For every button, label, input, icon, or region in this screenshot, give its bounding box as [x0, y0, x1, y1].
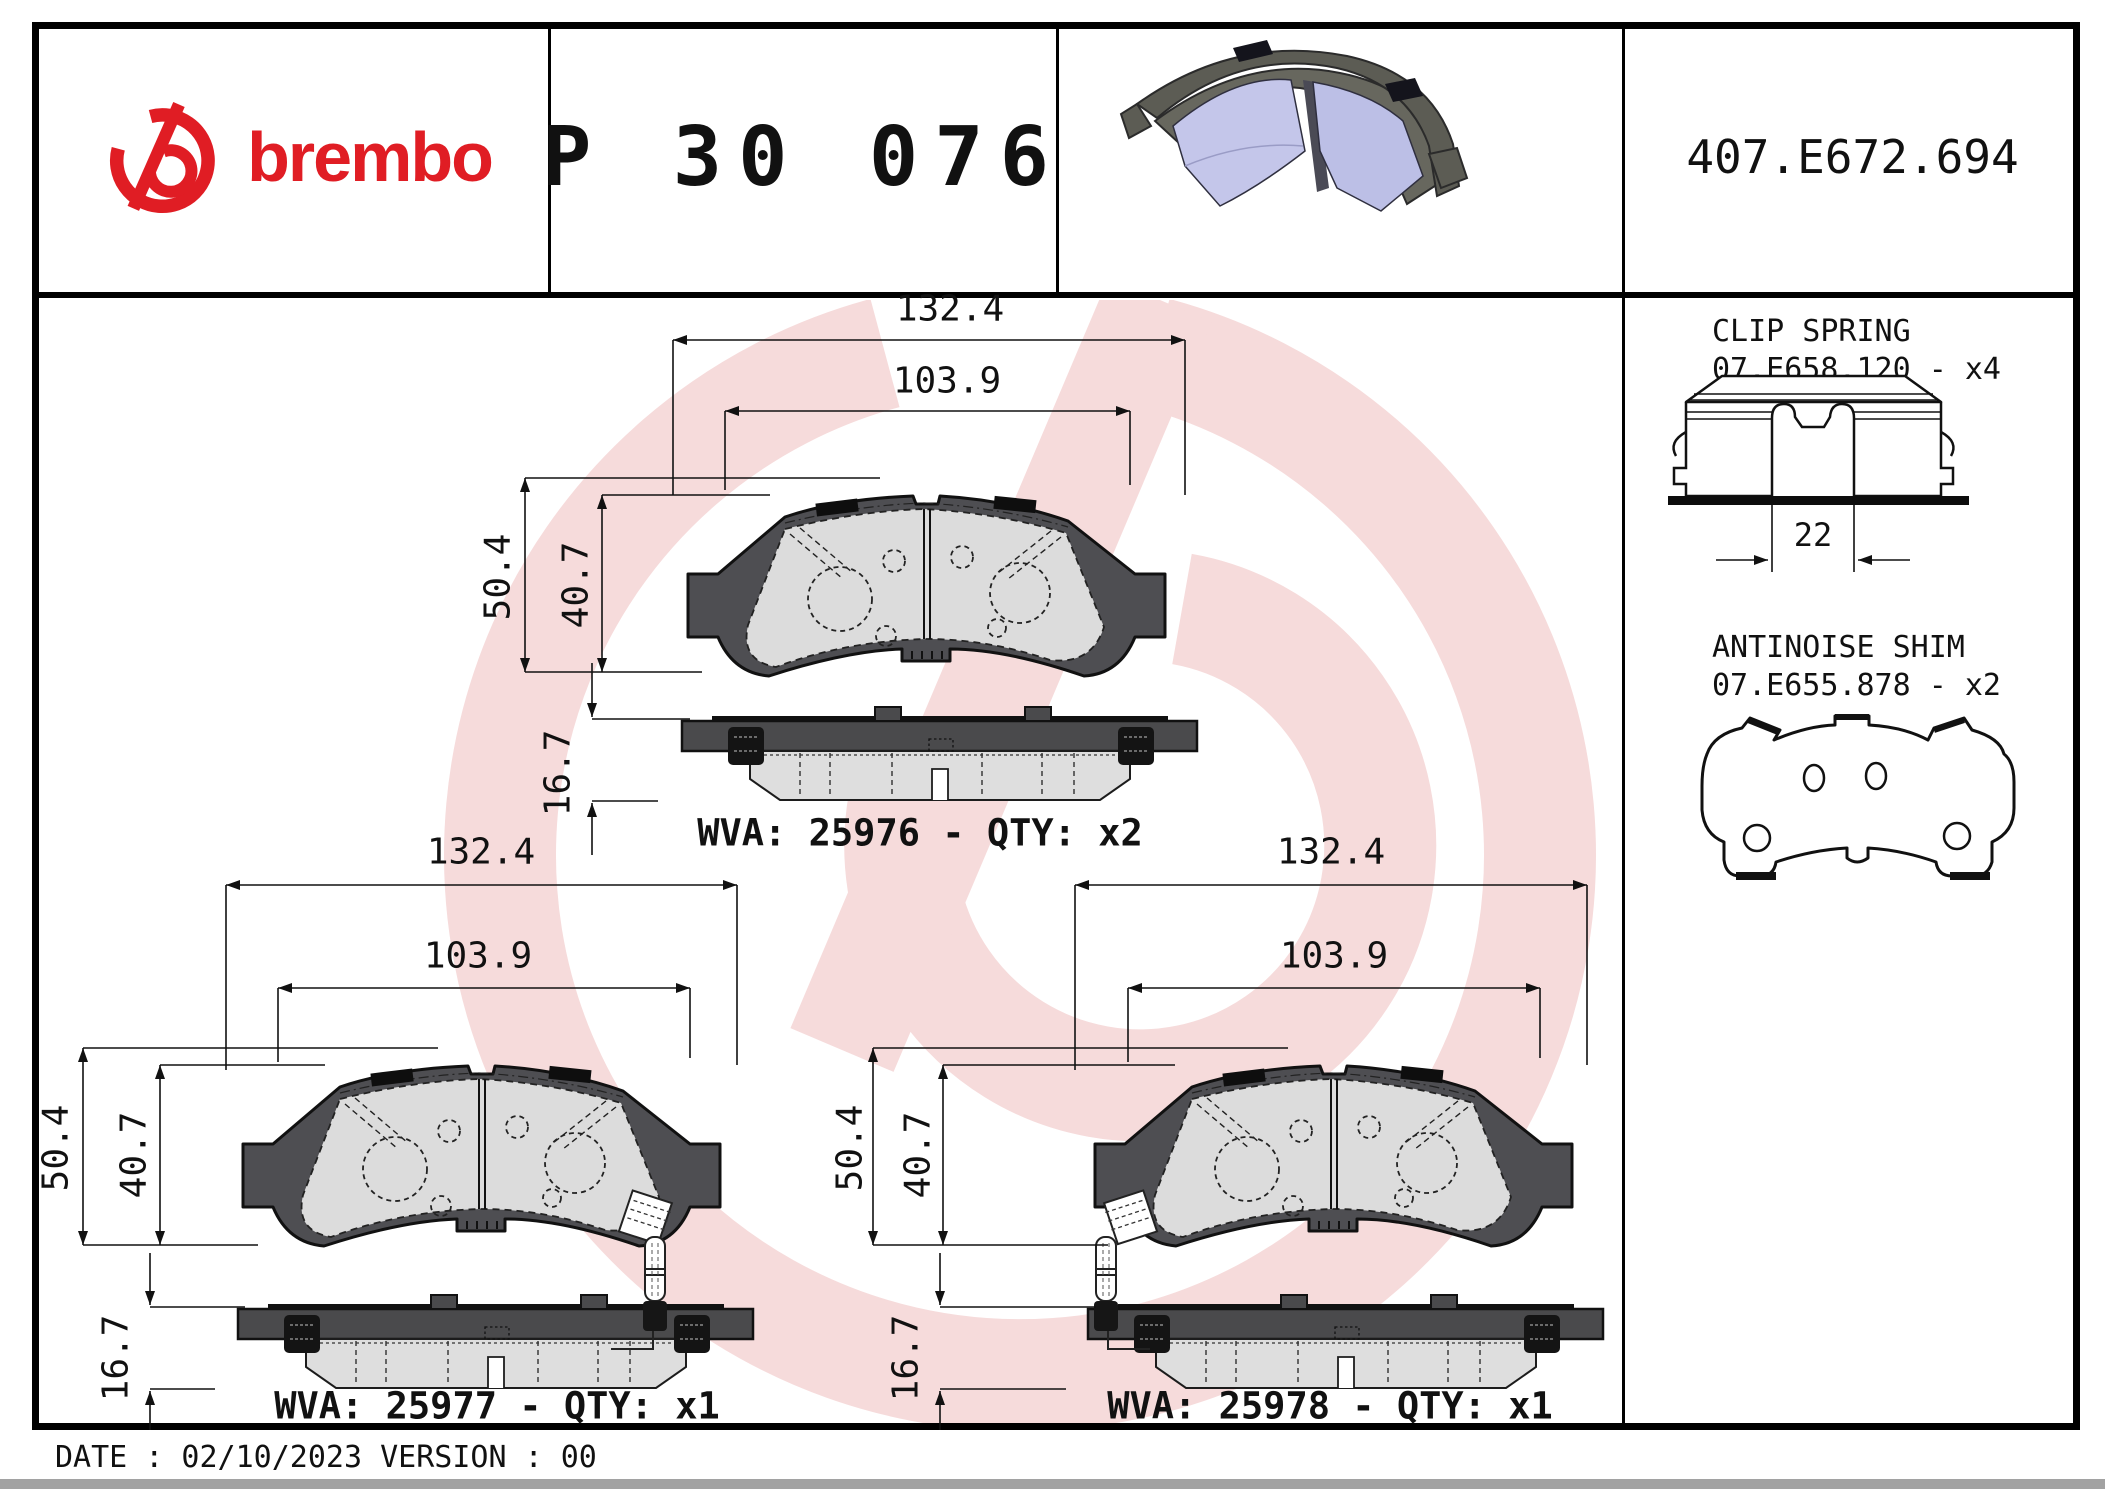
- clip-spring-title: CLIP SPRING: [1712, 314, 1911, 349]
- clip-spring-figure: 22: [1668, 372, 1961, 607]
- datasheet-page: brembo P 30 076 407.E672.694 CLIP SPRING…: [0, 0, 2105, 1489]
- dim-width-total: 132.4: [896, 289, 1004, 330]
- dim-width-pad: 103.9: [893, 361, 1001, 402]
- dim-thickness: 16.7: [96, 1315, 137, 1402]
- catalog-code-cell: 407.E672.694: [1625, 22, 2080, 292]
- dim-height-pad: 40.7: [114, 1112, 155, 1199]
- date-version-line: DATE : 02/10/2023 VERSION : 00: [55, 1440, 597, 1475]
- header-divider-right: [1622, 292, 2080, 298]
- dim-width-total: 132.4: [427, 832, 535, 873]
- dim-thickness: 16.7: [886, 1315, 927, 1402]
- pad-figure-25977: 132.4 103.9 50.4 40.7 16.7 WVA: 25977 - …: [0, 830, 800, 1430]
- dim-width-pad: 103.9: [1280, 936, 1388, 977]
- page-bottom-strip: [0, 1479, 2105, 1489]
- part-number: P 30 076: [542, 110, 1065, 205]
- dim-height-pad: 40.7: [556, 542, 597, 629]
- dim-height-total: 50.4: [830, 1105, 871, 1192]
- brembo-logo-icon: [98, 90, 233, 225]
- clip-spring-slot-width: 22: [1794, 516, 1833, 554]
- dim-width-pad: 103.9: [424, 936, 532, 977]
- brand-wordmark: brembo: [247, 122, 492, 192]
- dim-height-pad: 40.7: [898, 1112, 939, 1199]
- part-number-cell: P 30 076: [551, 22, 1056, 292]
- antinoise-shim-title: ANTINOISE SHIM: [1712, 630, 1965, 665]
- wva-label: WVA: 25977 - QTY: x1: [274, 1385, 720, 1428]
- pad-figure-25978: 132.4 103.9 50.4 40.7 16.7 WVA: 25978 - …: [838, 830, 1638, 1430]
- brake-pad-3d-image: [1085, 26, 1485, 226]
- brand-logo: brembo: [45, 22, 545, 292]
- dim-height-total: 50.4: [36, 1105, 77, 1192]
- dim-width-total: 132.4: [1277, 832, 1385, 873]
- pad-figure-25976: 132.4 103.9 50.4 40.7 16.7 WVA: 25976 - …: [440, 295, 1220, 875]
- dim-thickness: 16.7: [538, 730, 579, 817]
- antinoise-shim-figure: [1652, 690, 2052, 905]
- wva-label: WVA: 25978 - QTY: x1: [1107, 1385, 1553, 1428]
- catalog-code: 407.E672.694: [1686, 130, 2018, 184]
- dim-height-total: 50.4: [478, 534, 519, 621]
